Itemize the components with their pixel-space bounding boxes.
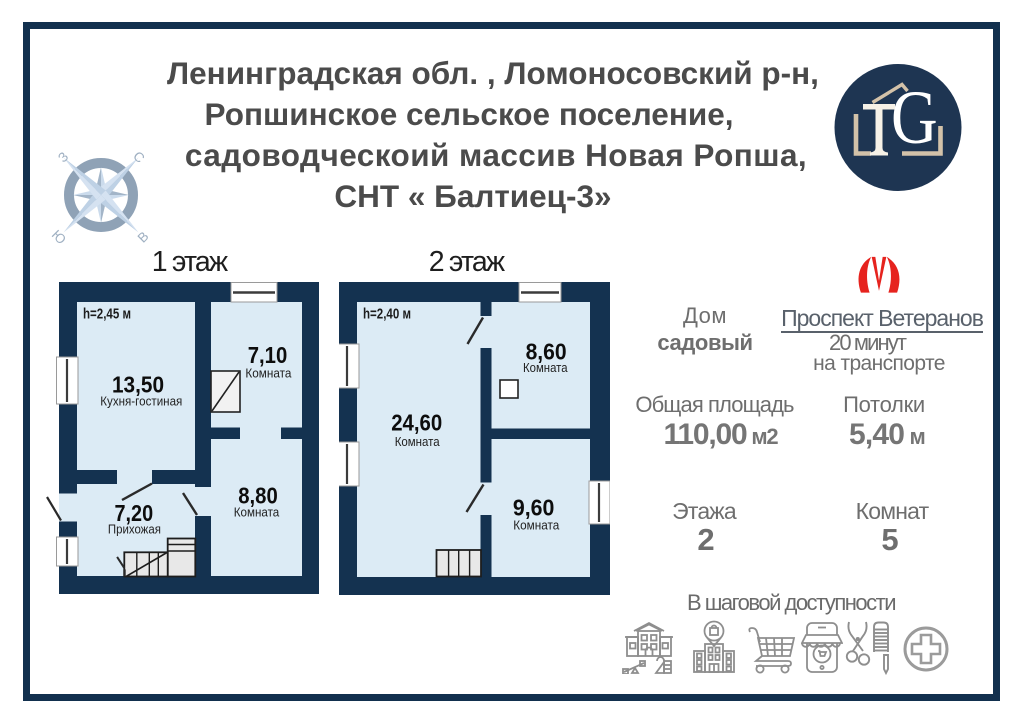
svg-text:Комната: Комната	[245, 366, 292, 381]
svg-text:В: В	[135, 229, 152, 246]
svg-text:7,10: 7,10	[248, 342, 288, 368]
svg-text:Комната: Комната	[234, 505, 280, 520]
svg-text:h=2,40 м: h=2,40 м	[363, 306, 411, 323]
svg-text:G: G	[891, 76, 938, 160]
svg-text:Кухня-гостиная: Кухня-гостиная	[100, 394, 182, 409]
svg-text:Комната: Комната	[395, 434, 441, 449]
svg-text:Комната: Комната	[523, 360, 568, 375]
svg-text:Прихожая: Прихожая	[108, 522, 161, 537]
svg-text:Комната: Комната	[513, 518, 560, 533]
svg-text:24,60: 24,60	[391, 410, 442, 436]
svg-text:h=2,45 м: h=2,45 м	[83, 306, 131, 323]
